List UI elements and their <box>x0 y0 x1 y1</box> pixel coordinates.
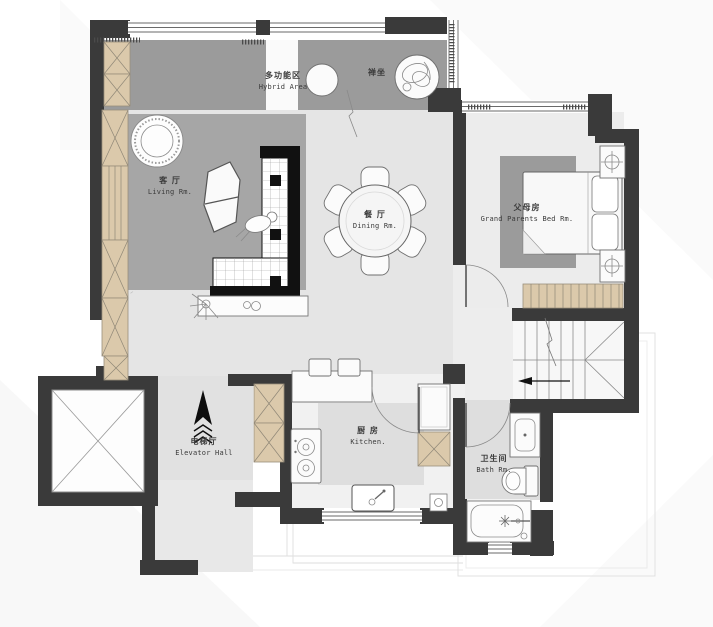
window-top-right <box>270 21 385 34</box>
bar-stool <box>338 359 360 376</box>
floor-drain <box>430 494 447 511</box>
vanity-sink <box>510 413 540 457</box>
nightstand-bottom <box>600 250 625 282</box>
hybrid-label-zh: 多功能区 <box>265 70 301 80</box>
elevator-hall-label-en: Elevator Hall <box>175 449 232 457</box>
elevator-hall-label-zh: 电梯厅 <box>191 436 218 446</box>
window-top-left <box>128 21 256 34</box>
window-kitchen-bottom <box>322 510 422 522</box>
dining-label-en: Dining Rm. <box>353 222 397 230</box>
kitchen-label-zh: 厨 房 <box>357 425 379 435</box>
bar-stool <box>309 359 331 376</box>
bed-double <box>523 172 622 254</box>
stairs-floor <box>513 321 624 400</box>
parents-bed-label-en: Grand Parents Bed Rm. <box>481 215 574 223</box>
cabinet-top-left <box>104 42 130 106</box>
hall-kitchen-column <box>254 384 284 462</box>
kitchen-sink <box>352 485 394 511</box>
tv-wall-wardrobe <box>102 110 128 380</box>
living-label-en: Living Rm. <box>148 188 192 196</box>
living-label-zh: 客 厅 <box>158 175 181 185</box>
bath-label-en: Bath Rm. <box>476 466 511 474</box>
nightstand-top <box>600 146 625 178</box>
window-bath-bottom <box>488 543 512 555</box>
zen-label: 禅坐 <box>367 67 386 77</box>
papasan-chair <box>131 115 183 167</box>
console-table <box>190 294 308 320</box>
kitchen-tall-cabinet <box>418 432 450 466</box>
refrigerator <box>418 384 450 430</box>
stove-cooktop <box>291 429 321 483</box>
zen-chair <box>395 55 439 99</box>
bedroom-wardrobe <box>523 284 623 308</box>
pillow <box>592 176 618 212</box>
hybrid-label-en: Hybrid Area <box>259 83 308 91</box>
bathtub <box>467 501 531 542</box>
kitchen-label-en: Kitchen. <box>350 438 385 446</box>
parents-bed-label-zh: 父母房 <box>513 202 541 212</box>
floor-plan-canvas: 多功能区 Hybrid Area 禅坐 客 厅 Living Rm. 餐 厅 D… <box>0 0 713 627</box>
elevator-shaft <box>38 376 158 506</box>
dining-table <box>339 185 411 257</box>
pillow <box>592 214 618 250</box>
floor-plan-drawing: 多功能区 Hybrid Area 禅坐 客 厅 Living Rm. 餐 厅 D… <box>0 0 713 627</box>
round-table <box>306 64 338 96</box>
dining-label-zh: 餐 厅 <box>363 209 386 219</box>
bath-label-zh: 卫生间 <box>481 453 508 463</box>
